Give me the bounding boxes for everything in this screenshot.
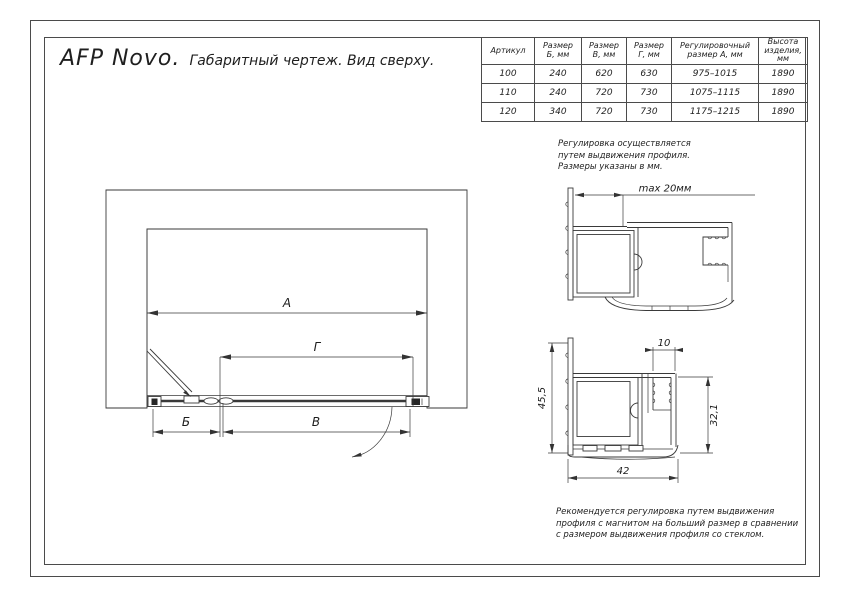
magnet-channel — [648, 374, 676, 448]
cell-artikul: 120 — [482, 102, 535, 121]
dim-label-321: 32,1 — [709, 404, 720, 426]
dimension-b: Б — [153, 409, 220, 437]
table-row: 120 340 720 730 1175–1215 1890 — [482, 102, 808, 121]
table-header-row: Артикул РазмерБ, мм РазмерВ, мм РазмерГ,… — [482, 38, 808, 65]
profile-body — [568, 374, 678, 460]
door-assembly — [147, 349, 429, 457]
dim-label-v: В — [312, 415, 320, 429]
wall-profile-strip — [566, 338, 573, 455]
cell-size-v: 720 — [582, 83, 627, 102]
dim-label-455: 45,5 — [537, 387, 548, 409]
cell-size-g: 630 — [627, 64, 672, 83]
profile-section-top: max 20мм — [550, 182, 765, 317]
table-header-cell: Регулировочныйразмер А, мм — [672, 38, 759, 65]
table-row: 100 240 620 630 975–1015 1890 — [482, 64, 808, 83]
cell-height: 1890 — [759, 83, 808, 102]
open-door-leader — [147, 349, 192, 397]
table-row: 110 240 720 730 1075–1115 1890 — [482, 83, 808, 102]
cell-size-g: 730 — [627, 102, 672, 121]
cell-adjust-a: 975–1015 — [672, 64, 759, 83]
cell-size-v: 620 — [582, 64, 627, 83]
cell-size-v: 720 — [582, 102, 627, 121]
cell-size-b: 240 — [535, 64, 582, 83]
spec-table: Артикул РазмерБ, мм РазмерВ, мм РазмерГ,… — [481, 37, 808, 122]
cell-adjust-a: 1075–1115 — [672, 83, 759, 102]
product-name: AFP Novo. — [60, 46, 180, 71]
plan-view-drawing: А Г Б В — [100, 185, 470, 475]
dim-label-10: 10 — [658, 338, 671, 349]
left-wall-profile — [148, 397, 161, 407]
table-header-cell: РазмерБ, мм — [535, 38, 582, 65]
dimension-455: 45,5 — [537, 343, 568, 453]
fixed-profile-box — [573, 227, 634, 298]
dim-label-42: 42 — [617, 466, 630, 477]
glass-clip — [631, 403, 639, 418]
cell-adjust-a: 1175–1215 — [672, 102, 759, 121]
drawing-sheet: AFP Novo. Габаритный чертеж. Вид сверху.… — [0, 0, 849, 600]
note-adjustment: Регулировка осуществляется путем выдвиже… — [558, 139, 691, 174]
cell-height: 1890 — [759, 64, 808, 83]
table-header-cell: РазмерВ, мм — [582, 38, 627, 65]
table-header-cell: Высотаизделия,мм — [759, 38, 808, 65]
table-header-cell: РазмерГ, мм — [627, 38, 672, 65]
table-header-cell: Артикул — [482, 38, 535, 65]
dim-label-b: Б — [182, 415, 190, 429]
dimension-a: А — [147, 296, 427, 316]
hinge-knob — [204, 398, 218, 404]
handle-block — [184, 396, 199, 403]
dim-label-a: А — [282, 296, 291, 310]
view-caption: Габаритный чертеж. Вид сверху. — [189, 53, 434, 69]
cell-artikul: 110 — [482, 83, 535, 102]
dimension-v: В — [223, 403, 410, 437]
dimension-321: 32,1 — [678, 377, 720, 453]
cell-artikul: 100 — [482, 64, 535, 83]
dimension-42: 42 — [568, 459, 678, 483]
hinge-knob — [219, 398, 233, 404]
profile-section-bottom: 45,5 10 32,1 42 — [535, 333, 735, 498]
dimension-max20: max 20мм — [575, 184, 755, 227]
cell-height: 1890 — [759, 102, 808, 121]
dim-label-max20: max 20мм — [639, 184, 692, 195]
cell-size-g: 730 — [627, 83, 672, 102]
profile-foot — [568, 445, 678, 459]
cell-size-b: 340 — [535, 102, 582, 121]
note-recommendation: Рекомендуется регулировка путем выдвижен… — [556, 507, 798, 542]
cell-size-b: 240 — [535, 83, 582, 102]
magnet-pocket — [703, 237, 728, 265]
dim-label-g: Г — [314, 340, 322, 354]
wall-profile-strip — [566, 188, 573, 300]
page-title: AFP Novo. Габаритный чертеж. Вид сверху. — [60, 46, 434, 71]
right-wall-profile — [406, 397, 429, 407]
dimension-10: 10 — [645, 338, 683, 371]
